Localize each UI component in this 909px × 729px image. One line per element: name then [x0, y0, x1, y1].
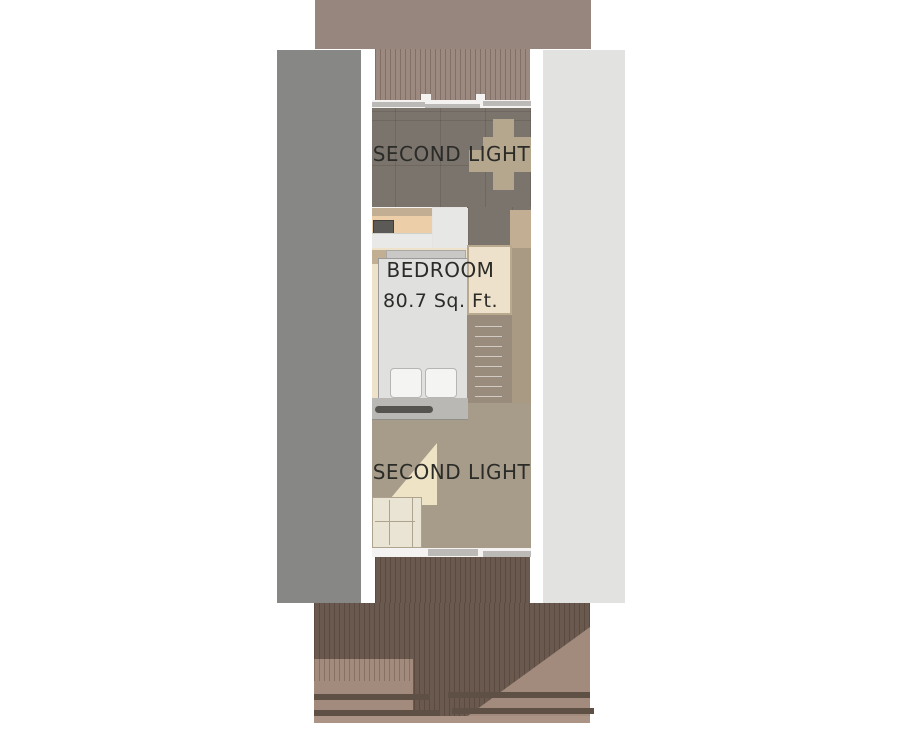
deck-bottom-edge	[314, 716, 590, 723]
lower-living-label: SECOND LIGHT	[372, 460, 531, 484]
kitchen-counter-back	[372, 208, 432, 216]
staircase	[467, 315, 512, 403]
bedroom-label: BEDROOM	[366, 258, 515, 282]
sofa	[372, 497, 422, 548]
sofa-back-line	[389, 500, 390, 545]
roof-overhang-top	[315, 0, 591, 49]
right-roof-panel	[543, 50, 625, 603]
lower-deck-entry	[375, 557, 530, 603]
sofa-cushion-line	[375, 521, 415, 522]
pillow	[425, 368, 457, 398]
sofa-armrest	[412, 498, 421, 547]
floorplan-canvas: SECOND LIGHT BEDROOM 80.7 Sq. Ft. SECOND…	[0, 0, 909, 729]
pillow	[390, 368, 422, 398]
bedroom-area-label: 80.7 Sq. Ft.	[366, 290, 515, 312]
upper-terrace-label: SECOND LIGHT	[372, 142, 531, 166]
deck-step-riser	[314, 694, 430, 700]
kitchen-cabinet-front	[372, 233, 432, 249]
upper-deck	[375, 49, 530, 100]
top-window-left	[372, 102, 425, 107]
interior-plan: SECOND LIGHT BEDROOM 80.7 Sq. Ft. SECOND…	[372, 100, 531, 557]
dining-chair	[493, 172, 514, 190]
ceiling-fan	[375, 406, 433, 413]
bottom-window-center	[428, 549, 478, 556]
loft-railing	[372, 398, 468, 420]
deck-step-riser	[452, 708, 594, 714]
lower-deck	[314, 603, 590, 723]
deck-step-left-upper	[314, 659, 413, 681]
dining-chair	[493, 119, 514, 137]
wall-column	[433, 208, 468, 252]
top-window-right	[483, 101, 531, 106]
deck-step-riser	[448, 692, 590, 698]
left-roof-panel	[277, 50, 361, 603]
kitchen-cabinet-right	[510, 210, 531, 248]
